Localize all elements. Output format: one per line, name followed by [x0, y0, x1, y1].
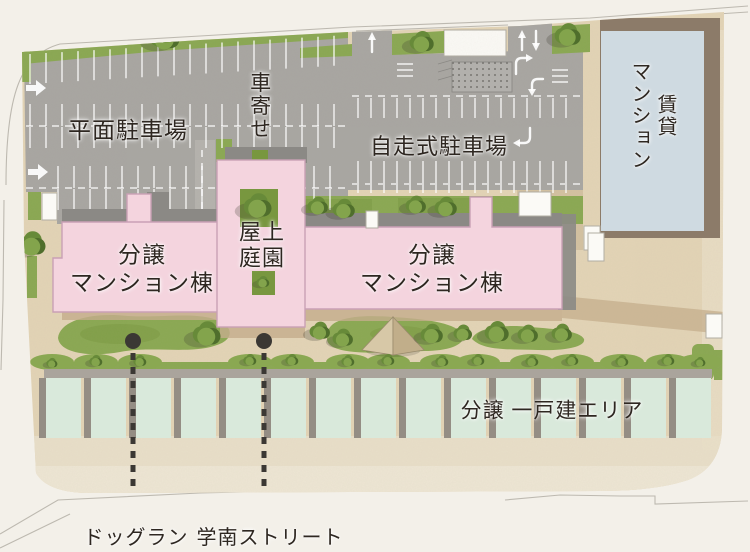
condo-building-left — [53, 222, 233, 312]
detached-house — [586, 378, 621, 438]
detached-houses — [39, 378, 711, 438]
house-shadow — [624, 378, 631, 438]
small-structure — [588, 233, 604, 261]
detached-house — [451, 378, 486, 438]
leader-dot — [256, 333, 272, 349]
detached-house — [181, 378, 216, 438]
house-shadow — [579, 378, 586, 438]
rooftop-garden-tower — [217, 160, 305, 327]
house-shadow — [84, 378, 91, 438]
house-shadow — [174, 378, 181, 438]
detached-house — [676, 378, 711, 438]
house-shadow — [489, 378, 496, 438]
detached-house — [136, 378, 171, 438]
small-structure — [706, 314, 722, 338]
detached-house — [316, 378, 351, 438]
small-structure — [366, 211, 378, 228]
small-structure — [519, 192, 551, 216]
building-shadow — [290, 308, 562, 321]
site-plan: 平面駐車場 車寄せ 自走式駐車場 賃貸 マンション 分譲 マンション棟 屋上 庭… — [0, 0, 750, 552]
small-structure — [42, 193, 57, 220]
house-shadow — [534, 378, 541, 438]
site-plan-drawing — [0, 0, 750, 552]
condo-building-left-wing — [127, 194, 151, 224]
detached-house — [541, 378, 576, 438]
detached-house — [361, 378, 396, 438]
house-shadow — [354, 378, 361, 438]
detached-house — [91, 378, 126, 438]
leader-dot — [125, 333, 141, 349]
rental-mansion-building — [601, 31, 704, 231]
house-shadow — [444, 378, 451, 438]
detached-house — [226, 378, 261, 438]
house-shadow — [219, 378, 226, 438]
detached-house — [406, 378, 441, 438]
house-shadow — [309, 378, 316, 438]
detached-house — [46, 378, 81, 438]
detached-house — [496, 378, 531, 438]
house-shadow — [399, 378, 406, 438]
house-row-wall — [44, 369, 712, 378]
detached-house — [631, 378, 666, 438]
detached-house — [271, 378, 306, 438]
house-shadow — [669, 378, 676, 438]
house-shadow — [39, 378, 46, 438]
